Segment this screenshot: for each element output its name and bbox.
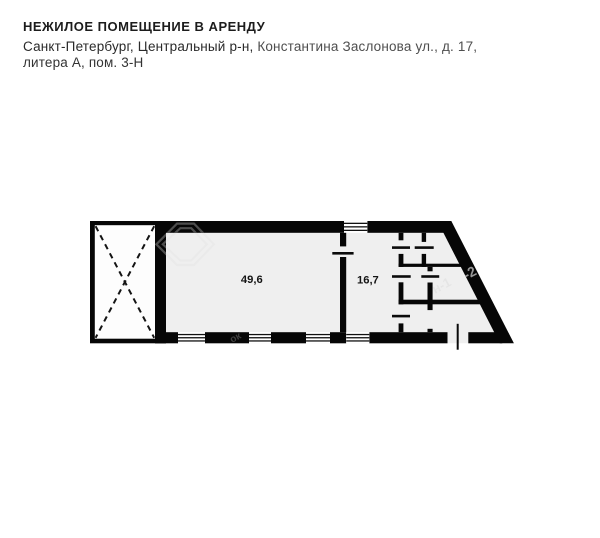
svg-text:16,7: 16,7 bbox=[357, 274, 379, 286]
svg-text:49,6: 49,6 bbox=[241, 274, 263, 286]
